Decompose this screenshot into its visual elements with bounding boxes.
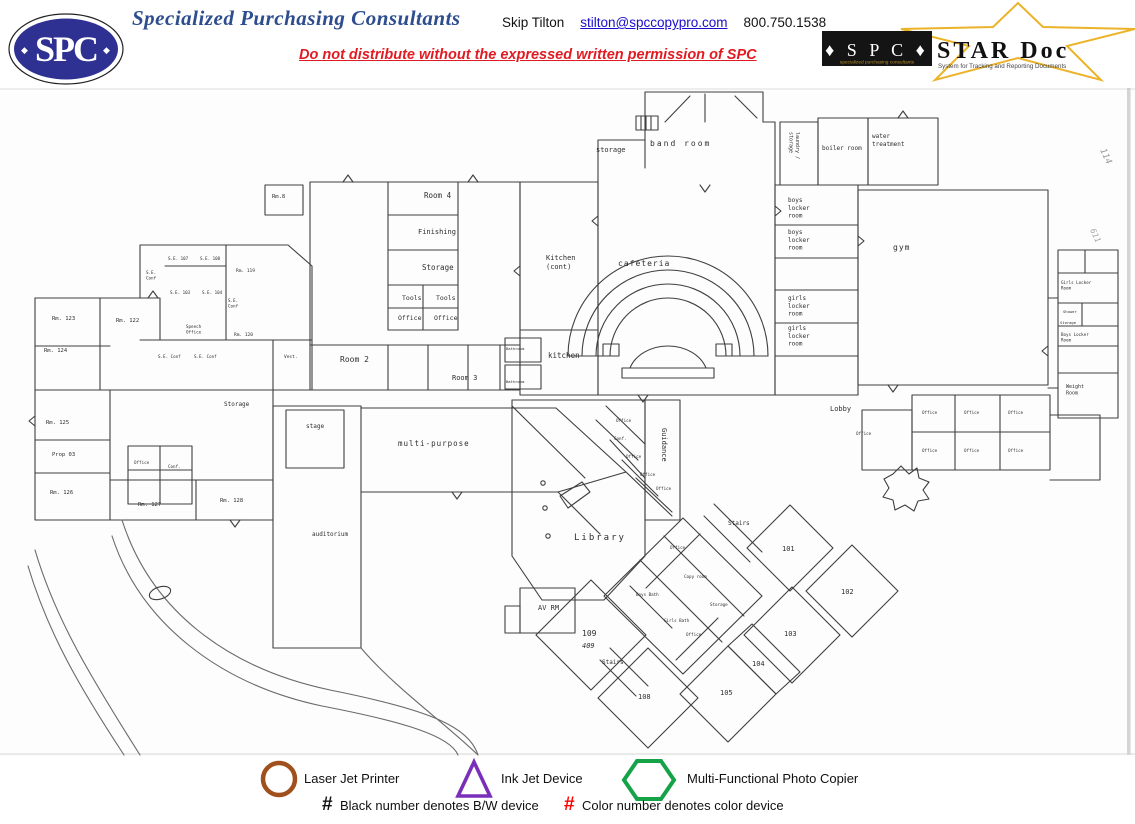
legend-color-note: Color number denotes color device: [582, 798, 784, 813]
room-label: Library: [574, 533, 626, 543]
legend-photo-copier-label: Multi-Functional Photo Copier: [687, 771, 858, 786]
floorplan: storageband roomlaundry /storageboiler r…: [0, 88, 1135, 757]
contact-row: Skip Tilton stilton@spccopypro.com 800.7…: [502, 15, 826, 30]
room-label: Office: [640, 472, 656, 477]
room-label: S.E.Conf: [228, 298, 239, 308]
spc-logo: SPC ◆ ◆: [6, 12, 126, 86]
room-label: watertreatment: [872, 133, 905, 148]
stardoc-tagline: System for Tracking and Reporting Docume…: [938, 63, 1066, 70]
room-label: boyslockerroom: [788, 229, 810, 252]
room-label: Lobby: [830, 405, 851, 413]
room-label: Prop 03: [52, 452, 75, 458]
room-label: 101: [782, 545, 795, 553]
room-label: Bathroom: [506, 379, 525, 384]
room-label: stage: [306, 423, 324, 430]
room-label: S.E. Conf: [158, 354, 181, 359]
room-label: boyslockerroom: [788, 197, 810, 220]
room-label: Tools: [402, 294, 422, 302]
room-label: Rm. 124: [44, 348, 68, 354]
room-label: Rm. 127: [138, 502, 161, 508]
room-label: Office: [616, 418, 632, 423]
room-label: multi-purpose: [398, 439, 470, 448]
room-label: Rm. 122: [116, 318, 139, 324]
room-label: Tools: [436, 294, 456, 302]
room-label: 611: [1088, 227, 1102, 244]
room-label: 108: [638, 693, 651, 701]
room-label: gym: [893, 243, 910, 252]
room-label: 105: [720, 689, 733, 697]
room-label: 103: [784, 630, 797, 638]
room-label: S.E. 107: [168, 256, 189, 261]
room-label: Office: [398, 314, 422, 322]
room-label: Conf.: [614, 436, 627, 441]
room-label: WeightRoom: [1066, 384, 1084, 397]
room-label: Boys LockerRoom: [1061, 332, 1089, 342]
floorplan-labels: storageband roomlaundry /storageboiler r…: [44, 132, 1113, 701]
stardoc-title: STAR Doc: [937, 38, 1069, 64]
room-label: Office: [922, 410, 938, 415]
room-label: Office: [656, 486, 672, 491]
room-label: Room 4: [424, 191, 452, 200]
room-label: auditorium: [312, 531, 349, 538]
legend-ink-jet-label: Ink Jet Device: [501, 771, 583, 786]
room-label: Office: [856, 431, 872, 436]
ink-jet-triangle-icon: [455, 758, 493, 800]
room-label: girlslockerroom: [788, 295, 810, 318]
room-label: S.E. 104: [202, 290, 223, 295]
room-label: Rm. 128: [220, 498, 243, 504]
room-label: Room 3: [452, 374, 477, 382]
room-label: kitchen: [548, 351, 580, 360]
room-label: Rm. 123: [52, 316, 75, 322]
room-label: Finishing: [418, 228, 456, 236]
stardoc-spc-subtext: specialized purchasing consultants: [840, 60, 915, 66]
room-label: boiler room: [822, 145, 862, 152]
contact-name: Skip Tilton: [502, 15, 564, 30]
room-label: Office: [1008, 448, 1024, 453]
room-label: Boys Bath: [636, 592, 659, 597]
room-label: Stairs: [728, 520, 750, 527]
room-label: Conf.: [168, 464, 181, 469]
room-label: cafeteria: [618, 259, 670, 268]
company-title: Specialized Purchasing Consultants: [132, 6, 461, 31]
room-label: Vest.: [284, 354, 298, 360]
room-label: Office: [1008, 410, 1024, 415]
room-label: 104: [752, 660, 765, 668]
stardoc-spc-text: ♦ S P C ♦: [825, 40, 929, 60]
room-label: Office: [964, 448, 980, 453]
room-label: Storage: [422, 263, 454, 272]
room-label: Guidance: [660, 428, 668, 462]
room-label: Office: [434, 314, 458, 322]
room-label: Rm. 126: [50, 490, 73, 496]
room-label: girlslockerroom: [788, 325, 810, 348]
room-label: storage: [596, 146, 626, 154]
room-label: Kitchen(cont): [546, 254, 576, 271]
room-label: Office: [670, 545, 686, 550]
floorplan-svg: storageband roomlaundry /storageboiler r…: [0, 88, 1135, 757]
room-label: Office: [964, 410, 980, 415]
room-label: Storage: [224, 401, 250, 408]
photo-copier-hexagon-icon: [620, 757, 678, 803]
room-label: Rm. 125: [46, 420, 69, 426]
legend-bw-note: Black number denotes B/W device: [340, 798, 539, 813]
room-label: Office: [626, 454, 642, 459]
black-hash-icon: #: [322, 794, 333, 816]
room-label: Bathroom: [506, 346, 525, 351]
room-label: laundry /storage: [788, 132, 801, 159]
room-label: Office: [686, 632, 702, 637]
scan-right-edge: [1127, 88, 1131, 755]
room-label: Storage: [710, 602, 728, 607]
room-label: Room 2: [340, 355, 369, 364]
room-label: Office: [134, 460, 150, 465]
stardoc-logo: ♦ S P C ♦ specialized purchasing consult…: [805, 0, 1135, 86]
logo-diamond-right: ◆: [103, 45, 110, 55]
room-label: S.E. 103: [170, 290, 191, 295]
floorplan-walls: [28, 92, 1118, 755]
room-label: Rm.8: [272, 194, 285, 200]
room-label: S.E. 108: [200, 256, 221, 261]
room-label: AV RM: [538, 604, 559, 612]
legend-laser-jet-label: Laser Jet Printer: [304, 771, 399, 786]
room-label: S.E. Conf: [194, 354, 217, 359]
room-label: 114: [1097, 147, 1113, 166]
room-label: Storage: [1060, 320, 1077, 325]
laser-jet-circle-icon: [259, 759, 299, 799]
distribution-warning: Do not distribute without the expressed …: [299, 47, 757, 63]
room-label: Copy room: [684, 574, 707, 579]
room-label: Office: [922, 448, 938, 453]
room-label: Girls LockerRoom: [1061, 280, 1092, 290]
room-label: 409: [582, 642, 595, 650]
room-label: 109: [582, 629, 597, 638]
room-label: Rm. 120: [234, 332, 253, 338]
room-label: SpeechOffice: [186, 324, 202, 334]
room-label: Girls Bath: [664, 618, 690, 623]
logo-text: SPC: [35, 29, 97, 69]
room-label: S.E.Conf: [146, 270, 157, 280]
room-label: Stairs: [602, 659, 624, 666]
contact-email-link[interactable]: stilton@spccopypro.com: [580, 15, 727, 30]
page: SPC ◆ ◆ Specialized Purchasing Consultan…: [0, 0, 1135, 824]
room-label: Shower: [1063, 309, 1077, 314]
room-label: Rm. 119: [236, 268, 255, 274]
room-label: band room: [650, 139, 711, 148]
room-label: 102: [841, 588, 854, 596]
red-hash-icon: #: [564, 794, 575, 816]
logo-diamond-left: ◆: [21, 45, 28, 55]
